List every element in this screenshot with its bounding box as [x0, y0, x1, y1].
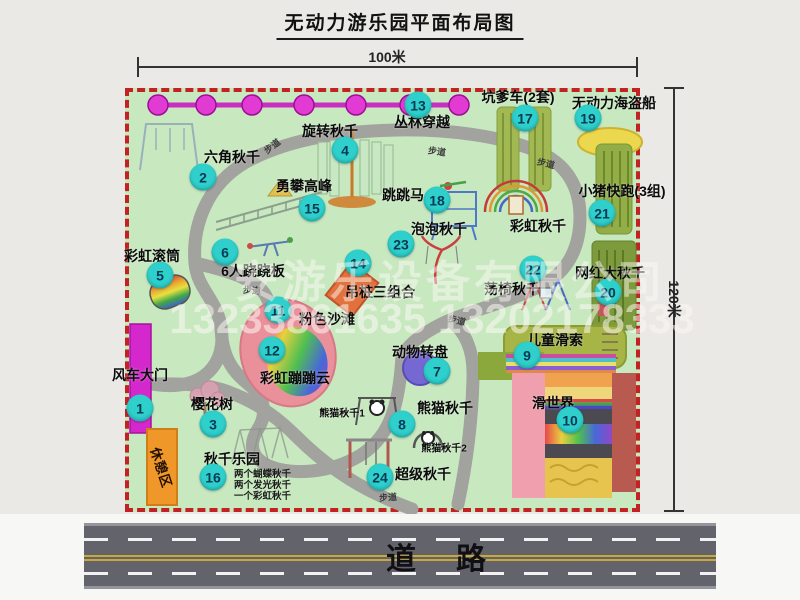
label-panda-swing-1: 熊猫秋千1: [319, 405, 365, 420]
label-pink-beach: 粉色沙滩: [299, 309, 355, 329]
height-dimension-label: 120米: [664, 280, 684, 317]
badge-22: 22: [520, 256, 547, 283]
road: 道路: [84, 523, 716, 589]
badge-8: 8: [389, 411, 416, 438]
path-label: 步道: [243, 283, 262, 297]
badge-6: 6: [212, 239, 239, 266]
badge-11: 11: [265, 297, 292, 324]
label-hanging-piles: 吊桩三组合: [345, 282, 415, 302]
label-climbing-peak: 勇攀高峰: [276, 176, 332, 196]
badge-4: 4: [332, 137, 359, 164]
badge-23: 23: [388, 231, 415, 258]
badge-7: 7: [424, 358, 451, 385]
label-piggy-run: 小猪快跑(3组): [578, 181, 665, 201]
label-rainbow-arch-swing: 彩虹秋千: [510, 216, 566, 236]
road-label: 道路: [346, 534, 526, 578]
label-panda-swing: 熊猫秋千: [417, 398, 473, 418]
label-jumping-horse: 跳跳马: [382, 185, 424, 205]
rest-area: 休憩区: [146, 428, 178, 506]
badge-17: 17: [512, 105, 539, 132]
badge-12: 12: [259, 337, 286, 364]
label-bubble-swing: 泡泡秋千: [411, 219, 467, 239]
badge-5: 5: [147, 262, 174, 289]
badge-2: 2: [190, 164, 217, 191]
badge-14: 14: [345, 250, 372, 277]
label-windmill-gate: 风车大门: [112, 365, 168, 385]
badge-18: 18: [424, 187, 451, 214]
badge-10: 10: [557, 407, 584, 434]
badge-16: 16: [200, 464, 227, 491]
badge-3: 3: [200, 411, 227, 438]
path-label: 步道: [427, 143, 447, 158]
badge-21: 21: [589, 200, 616, 227]
label-rainbow-cloud: 彩虹蹦蹦云: [260, 368, 330, 388]
badge-19: 19: [575, 105, 602, 132]
rest-area-label: 休憩区: [146, 444, 177, 490]
badge-20: 20: [595, 279, 622, 306]
swing-park-note-3: 一个彩虹秋千: [234, 488, 291, 502]
badge-13: 13: [405, 92, 432, 119]
label-panda-swing-2: 熊猫秋千2: [421, 440, 467, 455]
badge-9: 9: [514, 342, 541, 369]
path-label: 步道: [379, 490, 398, 504]
park-plan-canvas: 无动力游乐园平面布局图 100米 120米: [0, 0, 800, 600]
badge-15: 15: [299, 195, 326, 222]
width-dimension-label: 100米: [368, 47, 405, 67]
label-hexagon-swing: 六角秋千: [204, 147, 260, 167]
label-super-swing: 超级秋千: [395, 464, 451, 484]
badge-24: 24: [367, 464, 394, 491]
badge-1: 1: [127, 395, 154, 422]
label-kart: 坑爹车(2套): [481, 87, 554, 107]
page-title: 无动力游乐园平面布局图: [276, 8, 523, 40]
